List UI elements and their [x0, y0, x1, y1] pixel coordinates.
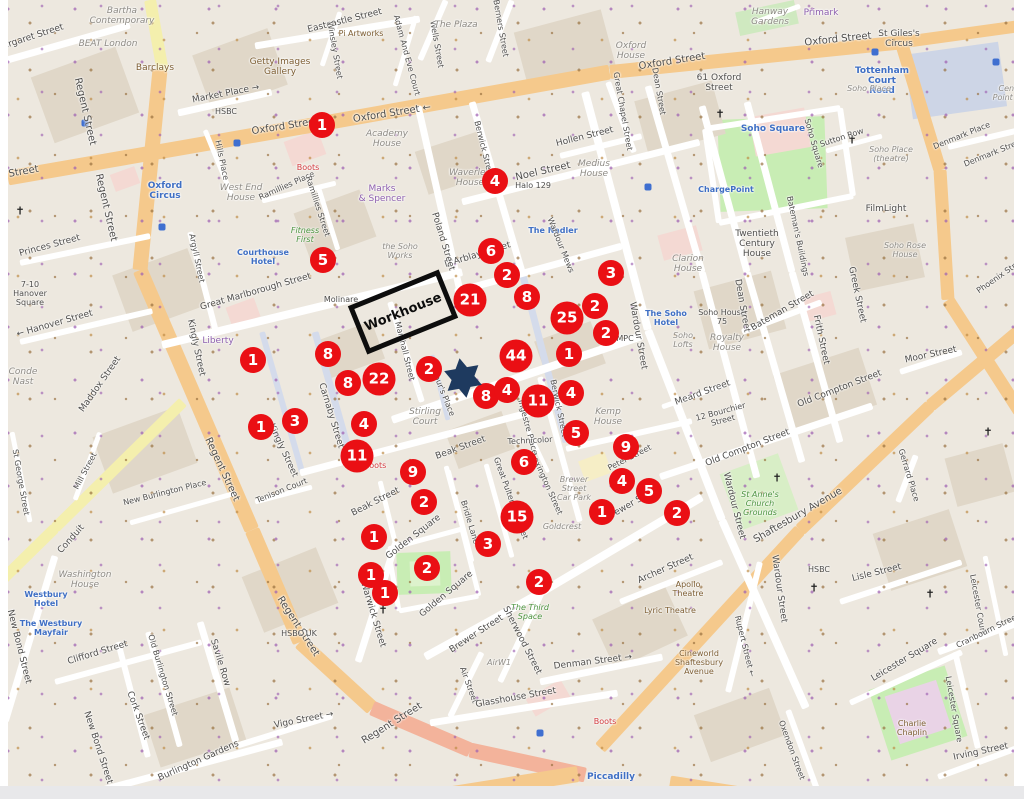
map-road: [415, 105, 466, 301]
bottom-gray-strip: [0, 786, 1024, 799]
map-marker: 9: [400, 459, 426, 485]
map-marker: 1: [372, 580, 398, 606]
map-marker: 3: [475, 531, 501, 557]
map-road: [837, 108, 856, 197]
map-marker: 2: [593, 320, 619, 346]
map-label: Boots: [198, 164, 418, 173]
map-area-block: [578, 452, 612, 482]
map-marker: 22: [363, 363, 396, 396]
map-marker: 5: [636, 478, 662, 504]
map-area-block: [945, 443, 1016, 507]
star-marker-icon: [440, 355, 486, 401]
map-label: Boots: [495, 718, 715, 727]
map-marker: 2: [664, 500, 690, 526]
map-marker: 8: [335, 370, 361, 396]
map-marker: 5: [310, 247, 336, 273]
map-marker: 6: [511, 449, 537, 475]
transit-icon: [82, 120, 89, 127]
map-area-block: [720, 453, 799, 531]
map-marker: 15: [501, 501, 534, 534]
transit-icon: [872, 49, 879, 56]
map-road: [427, 766, 580, 786]
map-road: [539, 654, 662, 686]
map-marker: 44: [500, 340, 533, 373]
map-area-block: [110, 166, 141, 192]
map-marker: 1: [556, 341, 582, 367]
map-marker: 8: [315, 341, 341, 367]
map-road: [619, 559, 723, 605]
map-label: Denmark Street: [890, 108, 1024, 199]
map-road: [144, 0, 169, 73]
map-marker: 4: [494, 377, 520, 403]
map-label: Washington House: [0, 571, 195, 591]
map-road: [447, 651, 484, 719]
map-marker: 4: [351, 411, 377, 437]
map-label: Westbury Hotel: [0, 591, 156, 609]
map-marker: 9: [613, 434, 639, 460]
map-road: [387, 527, 462, 552]
transit-icon: [234, 140, 241, 147]
map-marker: 6: [478, 238, 504, 264]
map-marker: 4: [558, 380, 584, 406]
map-label: Apollo Theatre: [578, 581, 798, 599]
map-marker: 5: [563, 420, 589, 446]
map-road: [609, 35, 905, 79]
screenshot-page: Workhouse ✝✝✝✝✝✝✝✝Margaret StreetBartha …: [0, 0, 1024, 799]
map-marker: 4: [609, 468, 635, 494]
map-area-block: [31, 47, 140, 144]
map-label: 61 Oxford Street: [609, 74, 829, 94]
map-marker: 11: [341, 440, 374, 473]
church-cross-icon: ✝: [15, 205, 24, 218]
map-road: [235, 713, 333, 749]
map-marker: 2: [582, 293, 608, 319]
map-marker: 3: [598, 260, 624, 286]
map-marker: 25: [551, 302, 584, 335]
map-marker: 21: [454, 284, 487, 317]
church-cross-icon: ✝: [925, 588, 934, 601]
map-road: [485, 0, 515, 63]
map-marker: 4: [482, 168, 508, 194]
map-marker: 1: [309, 112, 335, 138]
map-road: [2, 555, 59, 723]
map-label: Conde Nast: [0, 368, 133, 388]
map-road: [444, 465, 466, 529]
six-pointed-star: [442, 355, 483, 400]
map-road: [904, 20, 1021, 48]
soho-street-map: Workhouse ✝✝✝✝✝✝✝✝Margaret StreetBartha …: [0, 0, 1024, 786]
map-road: [259, 331, 305, 473]
map-road: [320, 11, 343, 67]
map-marker: 2: [416, 356, 442, 382]
map-marker: 8: [514, 284, 540, 310]
map-marker: 1: [589, 499, 615, 525]
church-cross-icon: ✝: [847, 134, 856, 147]
church-cross-icon: ✝: [772, 472, 781, 485]
map-road: [129, 491, 236, 526]
map-road: [899, 349, 963, 375]
transit-icon: [537, 730, 544, 737]
map-road: [329, 65, 612, 130]
map-road: [937, 619, 1021, 656]
map-road: [895, 454, 919, 503]
map-marker: 3: [282, 408, 308, 434]
transit-icon: [993, 59, 1000, 66]
church-cross-icon: ✝: [983, 426, 992, 439]
map-road: [399, 594, 480, 614]
workhouse-label: Workhouse: [362, 290, 444, 335]
map-road: [785, 709, 821, 786]
map-marker: 1: [361, 524, 387, 550]
map-label: The Nadler: [443, 227, 663, 236]
left-margin: [0, 0, 8, 786]
map-road: [369, 701, 473, 757]
church-cross-icon: ✝: [809, 582, 818, 595]
map-road: [934, 170, 955, 301]
map-road: [417, 0, 449, 61]
map-road: [254, 485, 312, 505]
map-road: [10, 432, 33, 523]
map-label: AirW1: [389, 659, 609, 668]
map-road: [947, 127, 1020, 150]
map-road: [937, 744, 1021, 780]
map-road: [983, 555, 1009, 656]
map-label: The Westbury Mayfair: [0, 620, 161, 638]
map-marker: 1: [240, 347, 266, 373]
right-margin: [1014, 0, 1024, 786]
map-marker: 11: [522, 385, 555, 418]
map-area-block: [694, 688, 786, 762]
map-road: [19, 233, 150, 266]
map-marker: 2: [411, 489, 437, 515]
map-area-block: [845, 223, 925, 291]
map-marker: 2: [414, 555, 440, 581]
map-label: Oxford Circus: [55, 182, 275, 202]
map-marker: 2: [494, 262, 520, 288]
church-cross-icon: ✝: [715, 108, 724, 121]
transit-icon: [159, 224, 166, 231]
map-marker: 2: [526, 569, 552, 595]
map-label: Liberty: [108, 337, 328, 347]
map-road: [669, 776, 773, 786]
transit-icon: [645, 184, 652, 191]
map-marker: 1: [248, 414, 274, 440]
